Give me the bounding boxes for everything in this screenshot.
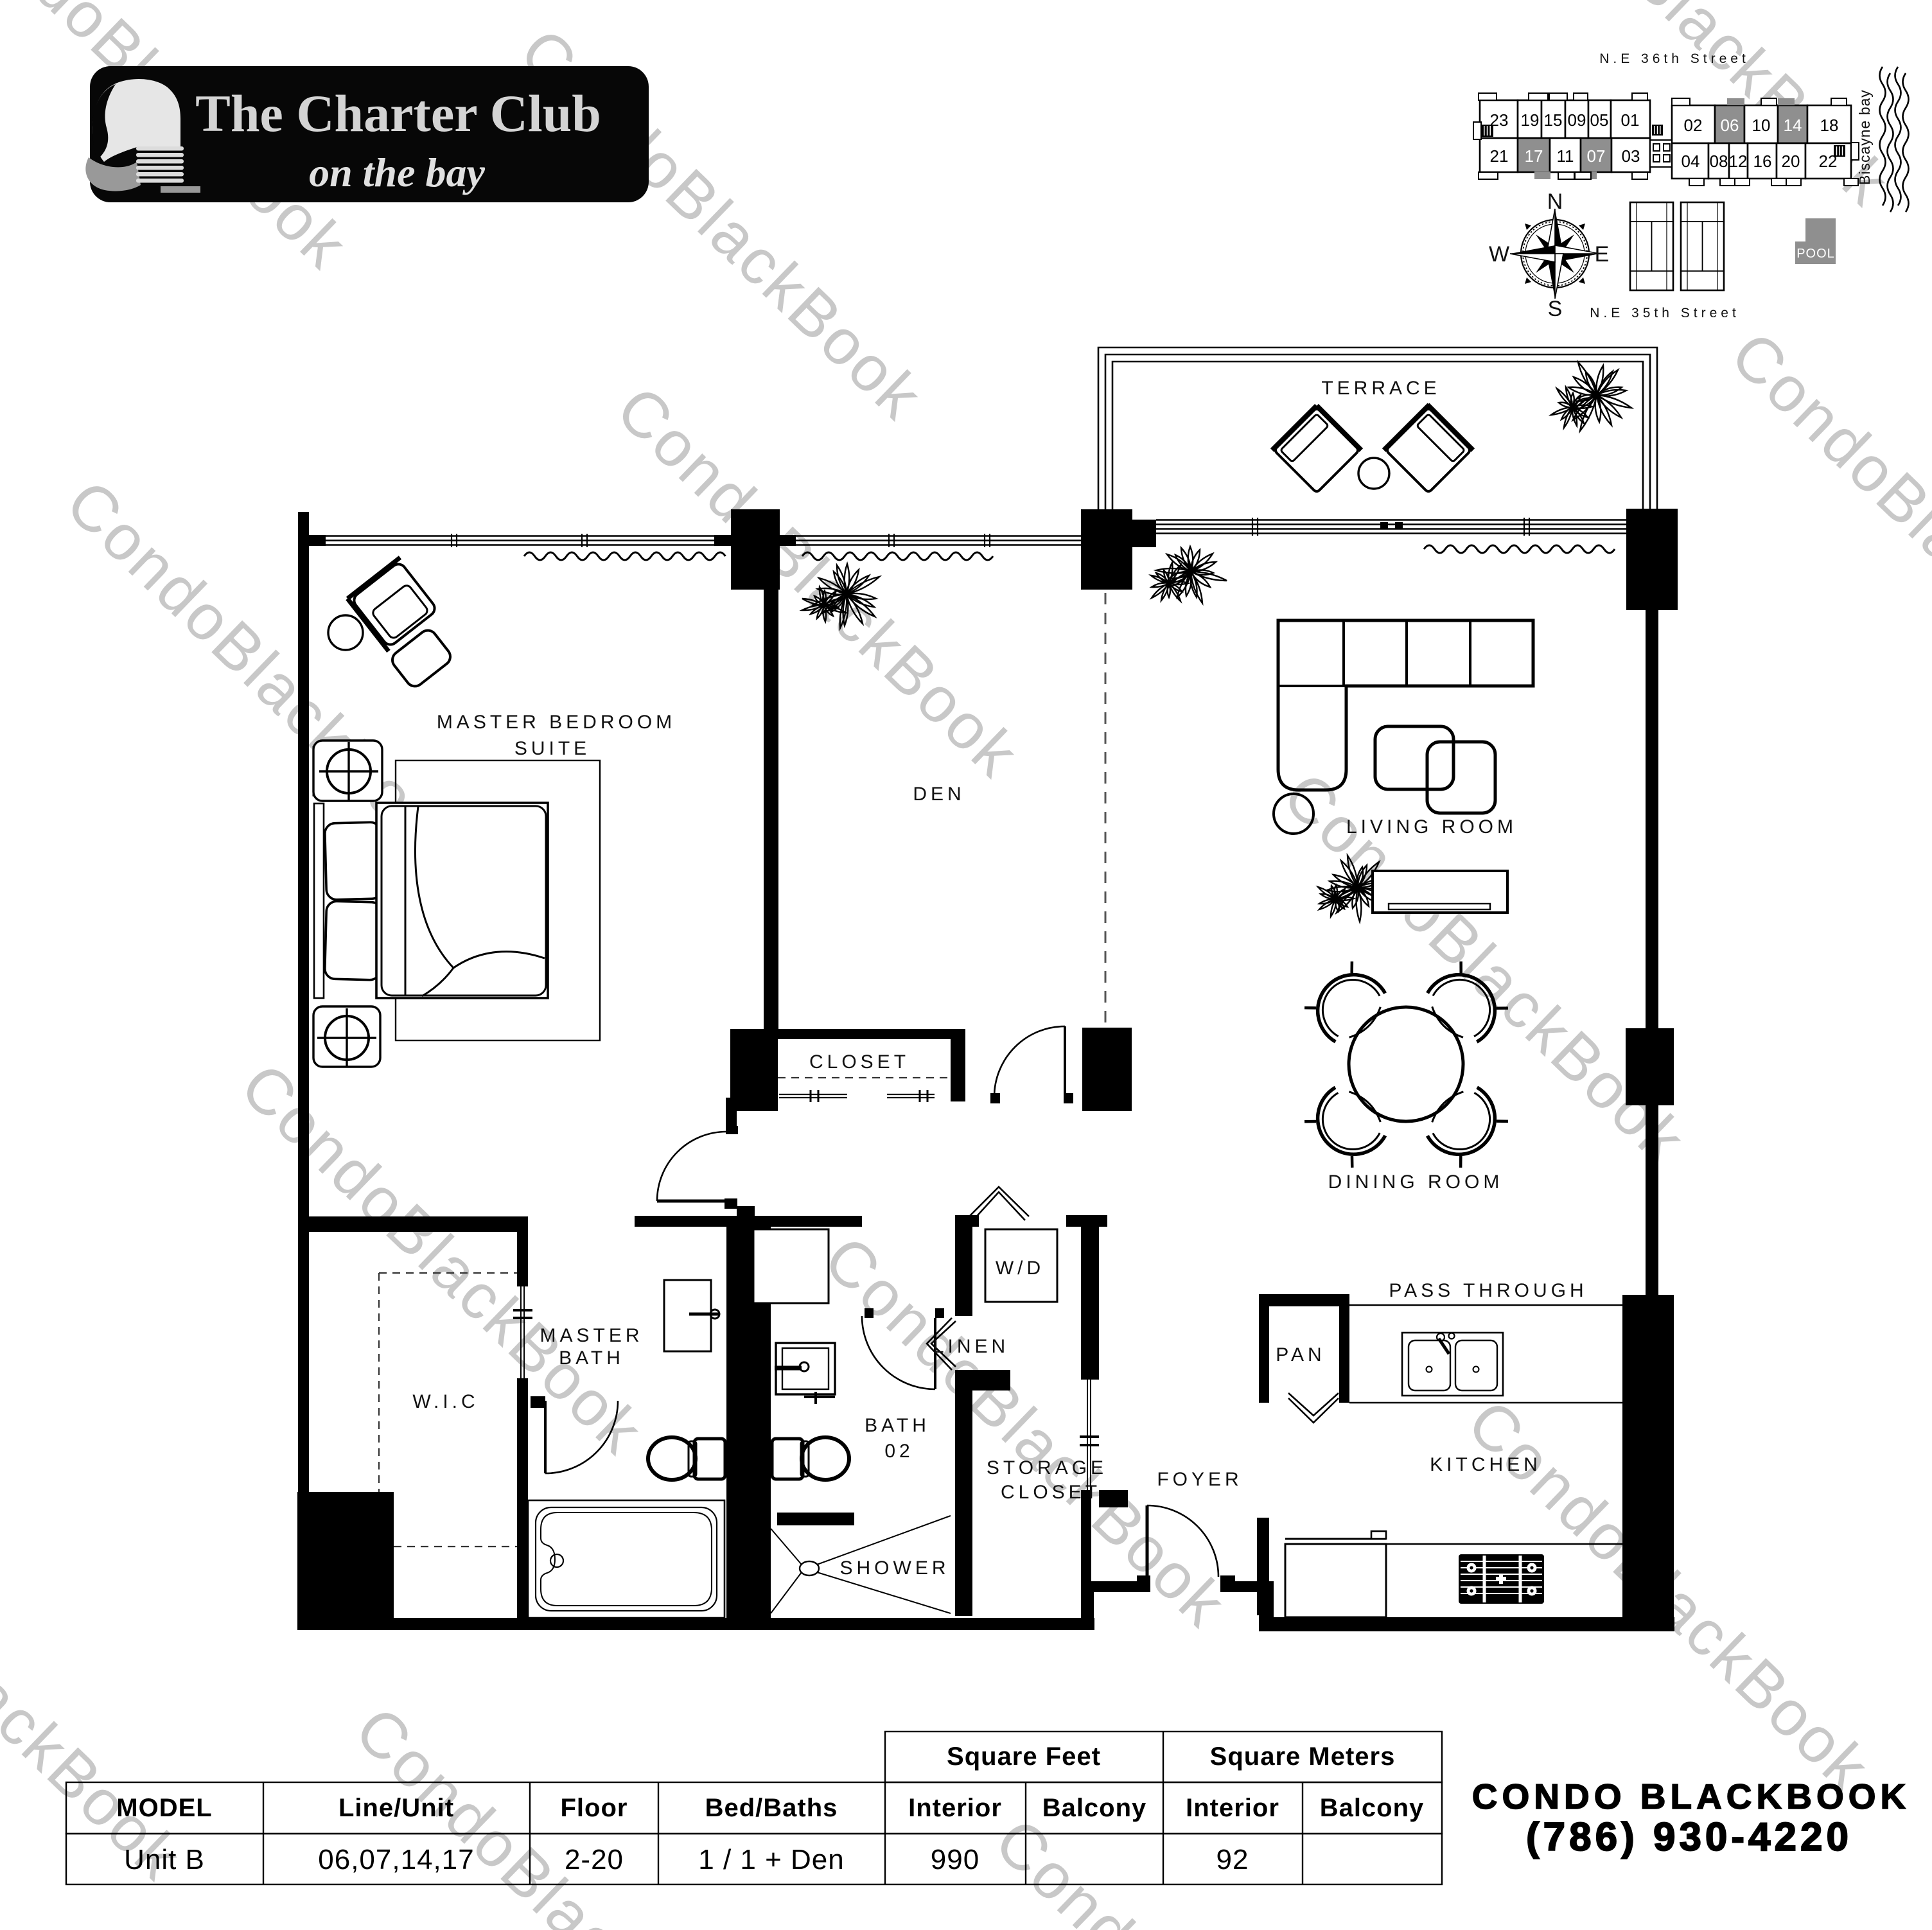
svg-text:01: 01 <box>1621 110 1640 130</box>
svg-text:E: E <box>1595 242 1610 267</box>
svg-text:CONDO BLACKBOOK: CONDO BLACKBOOK <box>1472 1776 1910 1816</box>
svg-text:TERRACE: TERRACE <box>1321 378 1440 399</box>
svg-text:LINEN: LINEN <box>933 1336 1009 1357</box>
svg-text:20: 20 <box>1782 152 1800 171</box>
svg-text:Balcony: Balcony <box>1042 1794 1147 1822</box>
svg-text:06: 06 <box>1721 116 1739 135</box>
svg-text:Interior: Interior <box>1186 1794 1279 1822</box>
svg-text:2-20: 2-20 <box>565 1844 624 1875</box>
svg-text:Bed/Baths: Bed/Baths <box>705 1794 838 1822</box>
svg-text:04: 04 <box>1682 152 1700 171</box>
svg-text:N.E 36th Street: N.E 36th Street <box>1599 51 1750 66</box>
svg-text:DINING ROOM: DINING ROOM <box>1328 1171 1504 1193</box>
svg-text:BATH: BATH <box>865 1415 930 1436</box>
svg-text:18: 18 <box>1820 116 1839 135</box>
svg-text:N: N <box>1547 189 1563 214</box>
svg-text:SUITE: SUITE <box>514 738 590 759</box>
svg-text:21: 21 <box>1490 146 1509 166</box>
svg-text:KITCHEN: KITCHEN <box>1430 1454 1541 1475</box>
svg-text:Square Meters: Square Meters <box>1210 1742 1396 1771</box>
svg-text:CLOSET: CLOSET <box>809 1051 909 1073</box>
svg-text:07: 07 <box>1587 146 1606 166</box>
svg-text:15: 15 <box>1544 110 1563 130</box>
svg-text:MASTER: MASTER <box>540 1325 643 1346</box>
svg-text:02: 02 <box>1684 116 1703 135</box>
svg-text:MODEL: MODEL <box>116 1794 212 1822</box>
svg-text:06,07,14,17: 06,07,14,17 <box>318 1844 474 1875</box>
svg-text:990: 990 <box>931 1844 979 1875</box>
svg-text:POOL: POOL <box>1796 247 1835 261</box>
svg-text:11: 11 <box>1557 146 1574 166</box>
svg-text:on the bay: on the bay <box>309 150 485 195</box>
svg-text:W/D: W/D <box>996 1258 1044 1279</box>
svg-text:92: 92 <box>1216 1844 1249 1875</box>
svg-text:1 / 1 + Den: 1 / 1 + Den <box>698 1844 844 1875</box>
svg-text:CLOSET: CLOSET <box>1001 1482 1101 1503</box>
svg-text:09: 09 <box>1568 110 1586 130</box>
svg-text:Line/Unit: Line/Unit <box>338 1794 454 1822</box>
svg-text:19: 19 <box>1521 110 1540 130</box>
svg-text:Biscayne bay: Biscayne bay <box>1856 89 1873 185</box>
svg-text:(786) 930-4220: (786) 930-4220 <box>1526 1815 1852 1859</box>
svg-text:05: 05 <box>1590 110 1609 130</box>
svg-text:08: 08 <box>1710 152 1728 171</box>
svg-text:03: 03 <box>1622 146 1640 166</box>
svg-text:MASTER BEDROOM: MASTER BEDROOM <box>437 712 676 733</box>
svg-text:W.I.C: W.I.C <box>412 1391 479 1412</box>
svg-text:S: S <box>1548 297 1563 321</box>
svg-text:The Charter Club: The Charter Club <box>195 84 601 143</box>
svg-text:STORAGE: STORAGE <box>987 1457 1107 1478</box>
svg-text:W: W <box>1489 242 1509 267</box>
svg-text:16: 16 <box>1753 152 1772 171</box>
svg-text:DEN: DEN <box>913 784 965 805</box>
svg-text:Interior: Interior <box>908 1794 1002 1822</box>
svg-text:Square Feet: Square Feet <box>947 1742 1101 1771</box>
svg-text:Balcony: Balcony <box>1320 1794 1425 1822</box>
svg-text:12: 12 <box>1729 152 1748 171</box>
svg-text:BATH: BATH <box>559 1347 624 1369</box>
svg-text:SHOWER: SHOWER <box>840 1557 950 1579</box>
svg-text:02: 02 <box>884 1441 913 1462</box>
svg-text:LIVING ROOM: LIVING ROOM <box>1346 816 1517 838</box>
svg-text:Unit B: Unit B <box>124 1844 205 1875</box>
svg-text:Floor: Floor <box>561 1794 628 1822</box>
svg-text:14: 14 <box>1784 116 1802 135</box>
svg-text:PASS THROUGH: PASS THROUGH <box>1389 1280 1587 1301</box>
svg-text:17: 17 <box>1525 146 1543 166</box>
svg-text:PAN: PAN <box>1276 1344 1325 1365</box>
svg-text:FOYER: FOYER <box>1157 1469 1242 1490</box>
svg-text:10: 10 <box>1752 116 1771 135</box>
svg-text:N.E 35th Street: N.E 35th Street <box>1590 306 1740 320</box>
